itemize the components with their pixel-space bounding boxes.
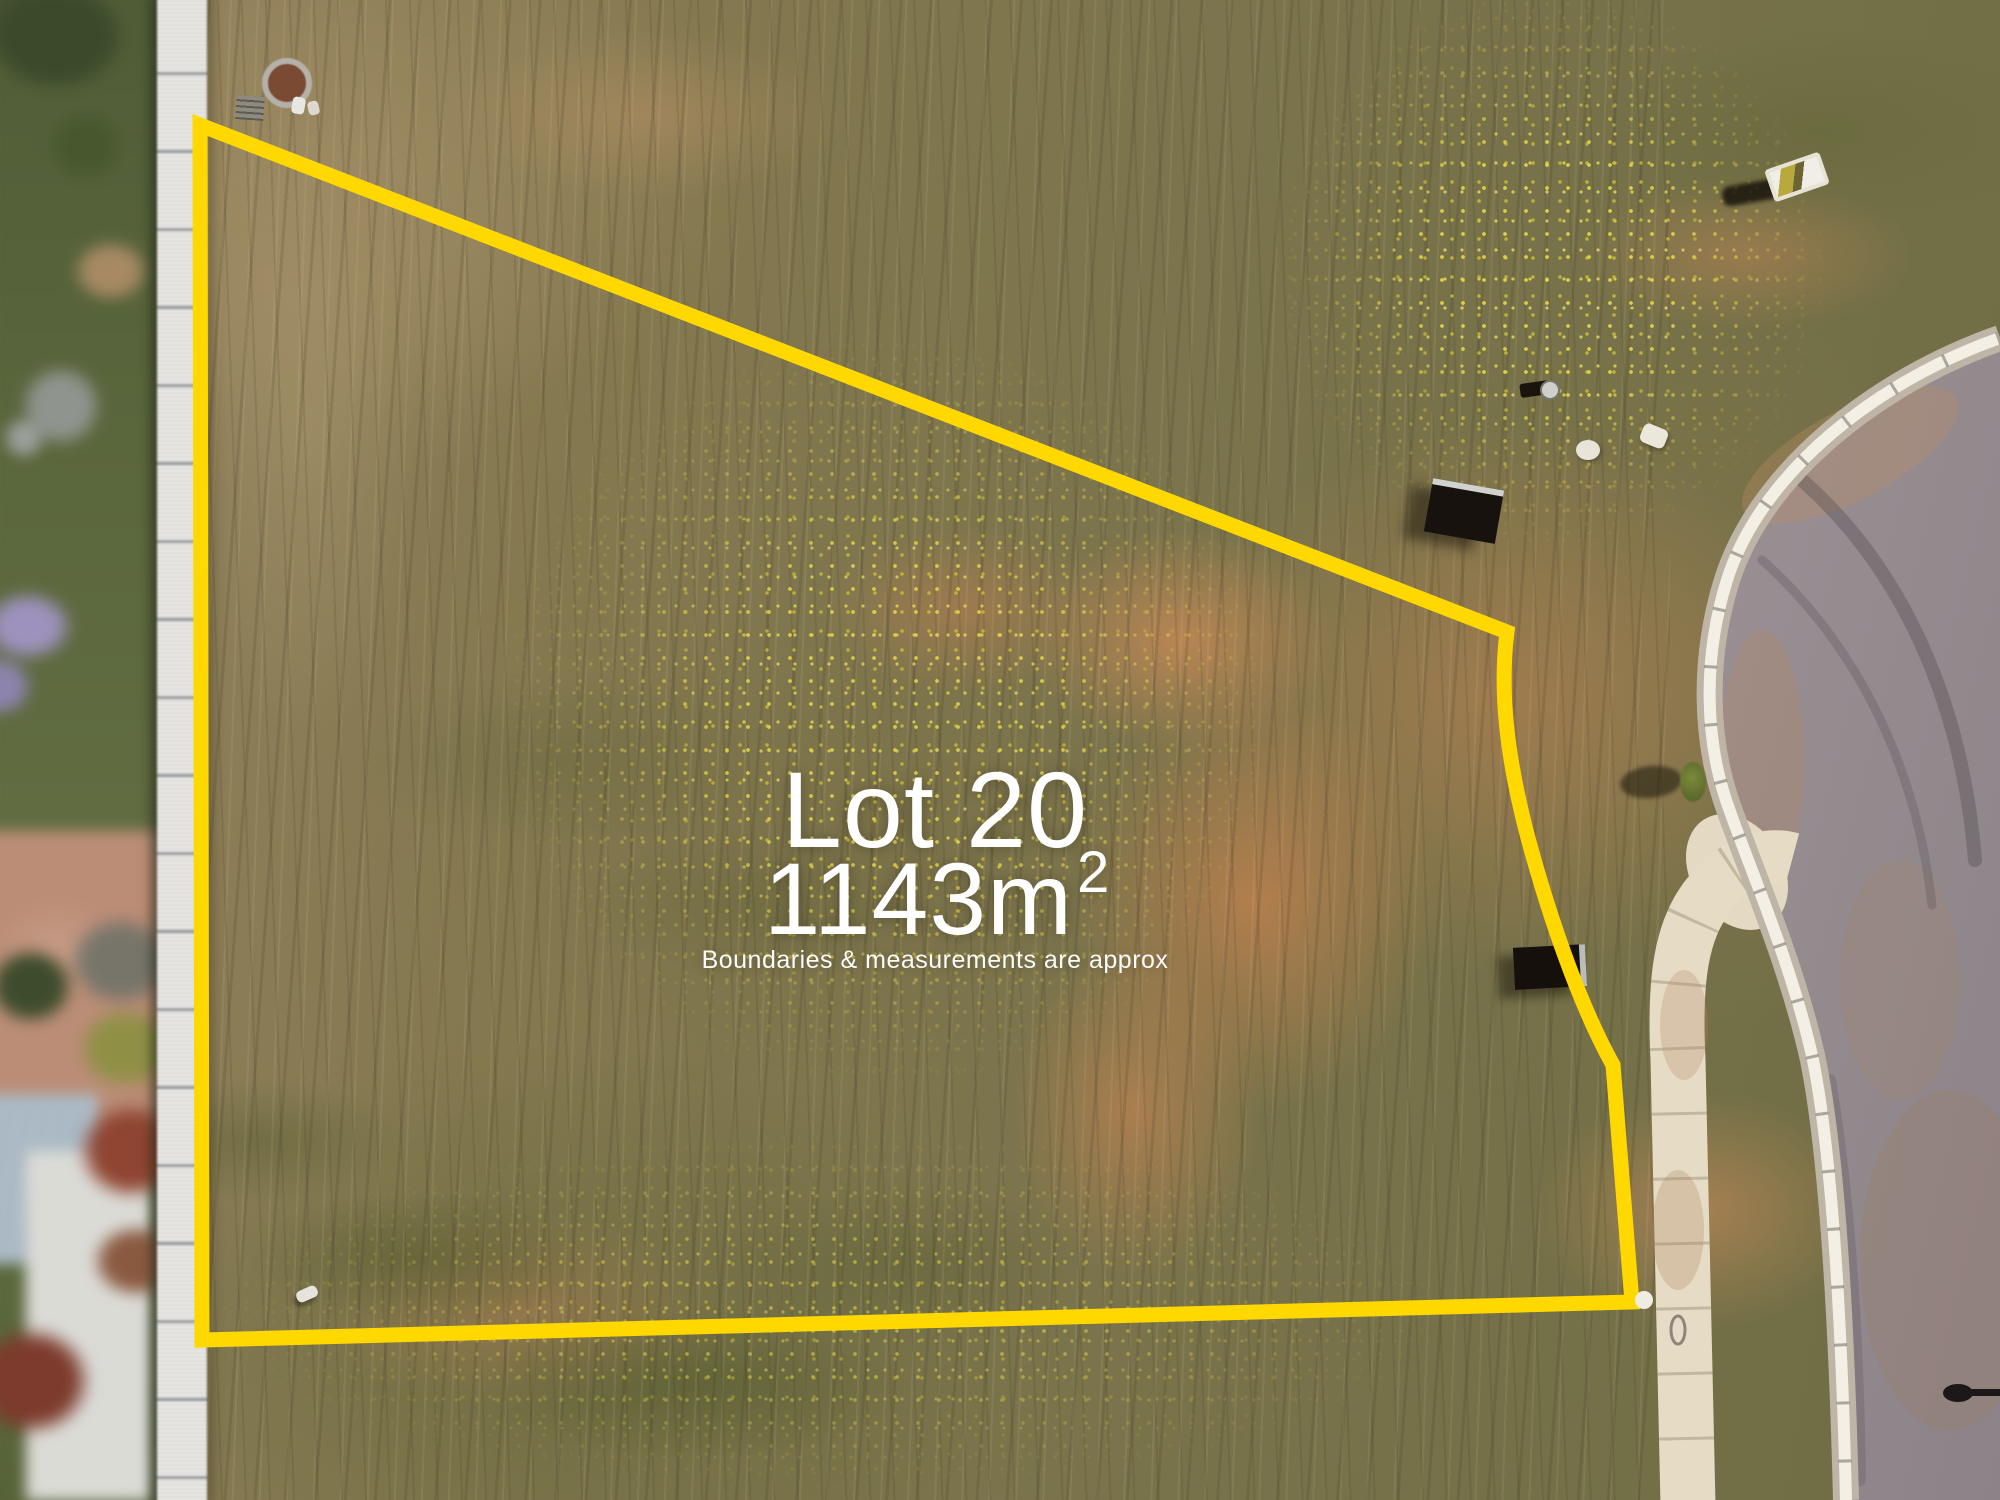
survey-peg — [1635, 1291, 1653, 1309]
lot-boundary-line — [200, 125, 1632, 1340]
aerial-photo: Lot 20 1143m2 Boundaries & measurements … — [0, 0, 2000, 1500]
disclaimer-text: Boundaries & measurements are approx — [702, 946, 1169, 975]
lot-area-value: 1143m — [764, 842, 1073, 956]
lot-caption: Lot 20 1143m2 Boundaries & measurements … — [702, 756, 1169, 975]
lot-area-label: 1143m2 — [702, 848, 1169, 950]
lot-area-exponent: 2 — [1077, 840, 1110, 905]
